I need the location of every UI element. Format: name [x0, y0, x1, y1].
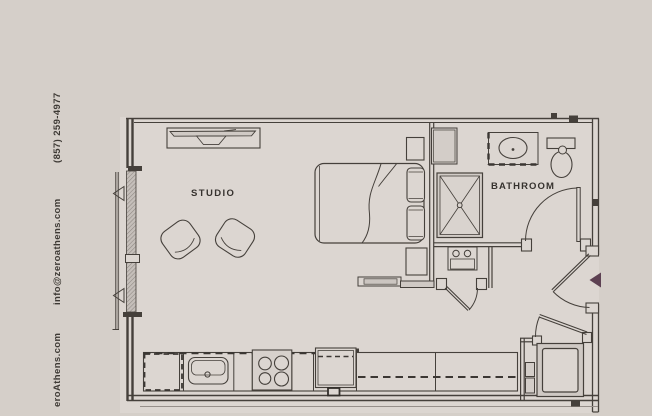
bed-icon [315, 164, 425, 244]
utility-unit-icon [448, 247, 477, 270]
floor-plan-page: { "page": { "background_color": "#d5cfc9… [0, 0, 652, 416]
contact-email: info@zeroathens.com [52, 198, 63, 305]
contact-website: eroAthens.com [52, 333, 63, 407]
bathroom-cabinet-icon [432, 128, 458, 164]
shower-icon [437, 173, 483, 238]
vanity-sink-icon [489, 133, 539, 165]
nightstand-icon [407, 138, 425, 161]
nightstand-icon [406, 248, 427, 275]
pillow-icon [407, 168, 425, 202]
refrigerator-icon [316, 348, 357, 388]
floor-plan [0, 0, 652, 416]
pillow-icon [407, 206, 425, 240]
stove-icon [252, 350, 291, 390]
outlet-icon [328, 388, 340, 396]
studio-room-label: STUDIO [191, 188, 235, 199]
contact-phone: (857) 259-4977 [52, 92, 63, 163]
kitchen-sink-icon [189, 358, 229, 385]
media-console-icon [167, 128, 260, 148]
bathroom-room-label: BATHROOM [491, 181, 555, 192]
